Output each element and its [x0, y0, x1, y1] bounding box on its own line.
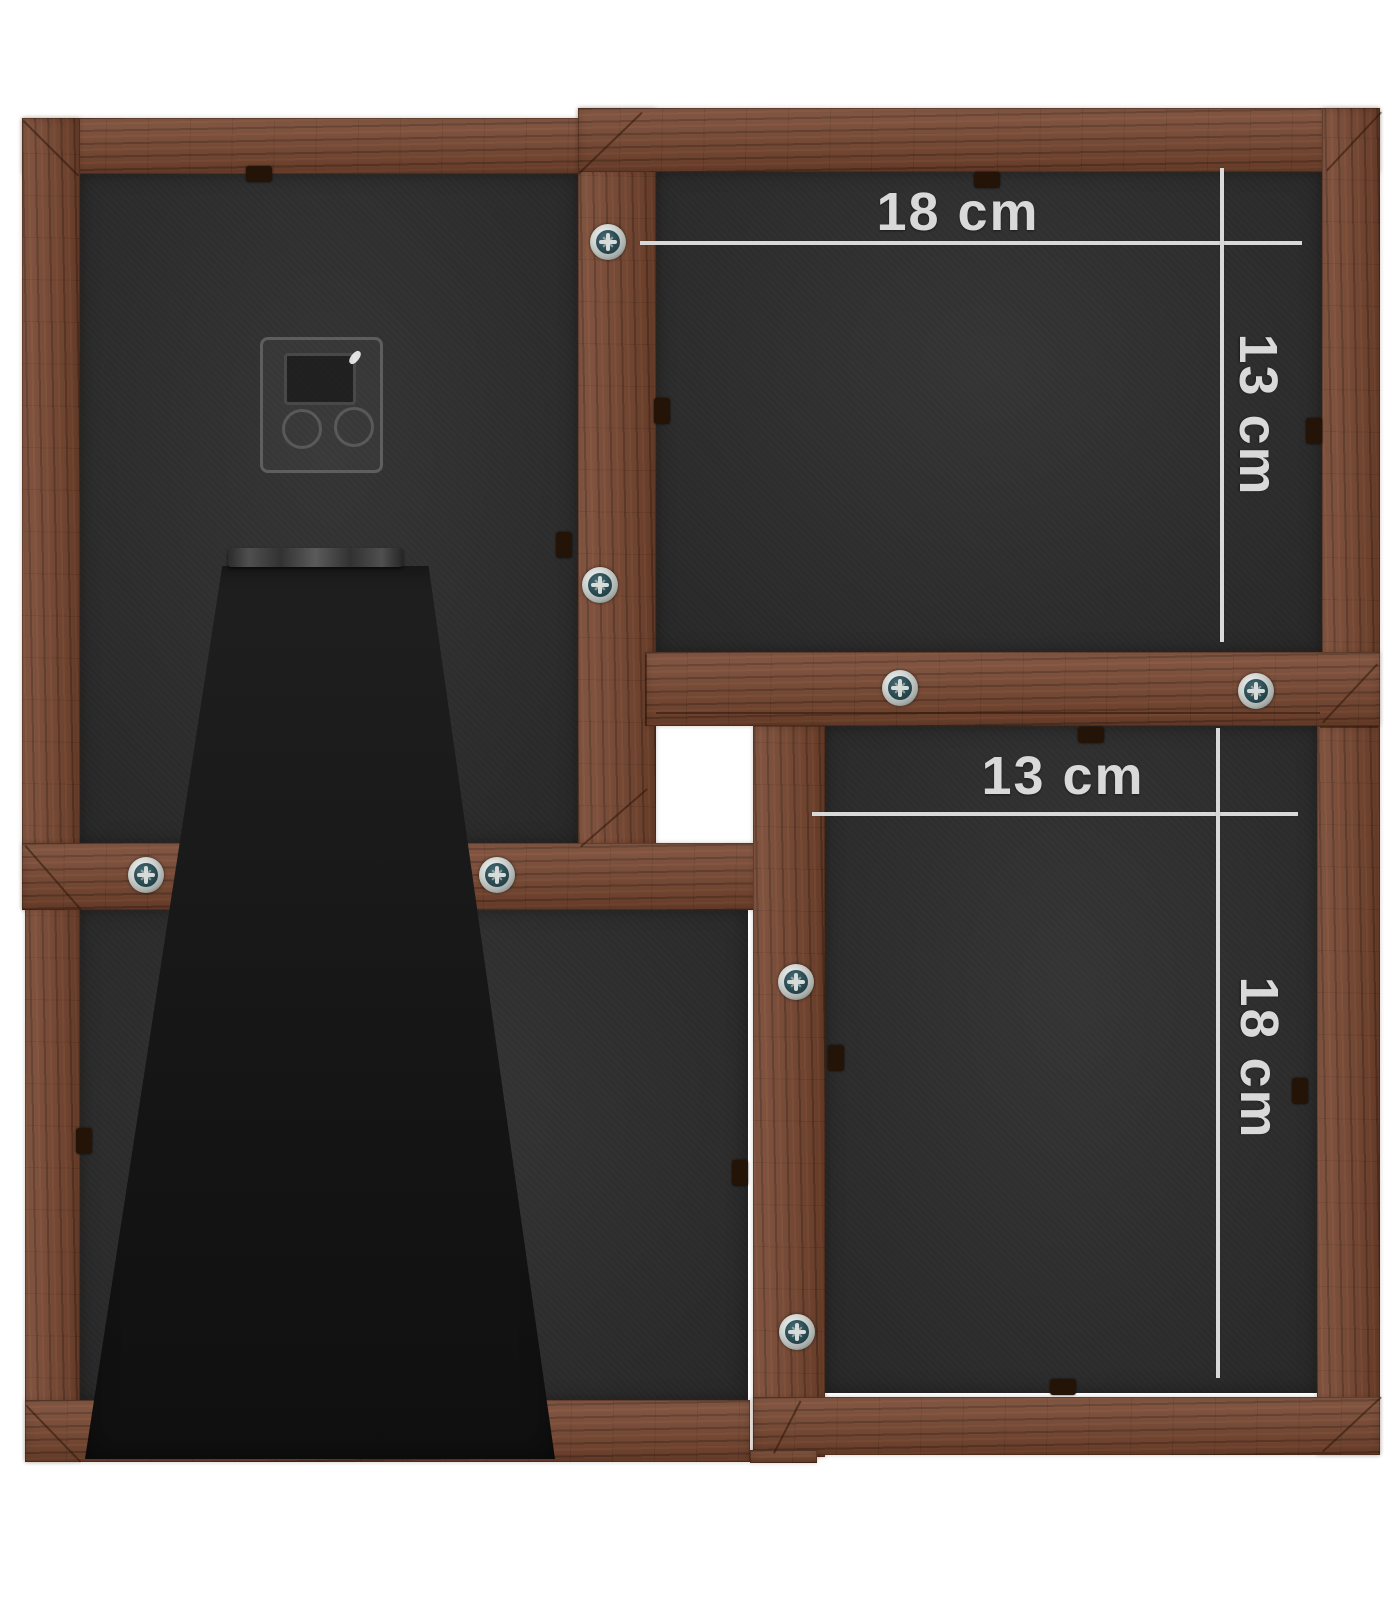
retaining-clip — [246, 166, 272, 182]
top-right-frame-right-bar — [1322, 108, 1380, 726]
retaining-clip — [828, 1045, 844, 1071]
screw — [479, 857, 515, 893]
screw-head — [588, 573, 612, 597]
bottom-right-frame-bottom-bar — [753, 1397, 1380, 1455]
dim-line-bottom-right-height — [1216, 728, 1220, 1378]
screw-head — [485, 863, 509, 887]
retaining-clip — [732, 1160, 748, 1186]
screw-head — [596, 230, 620, 254]
top-left-frame-left-bar — [22, 118, 80, 910]
screw — [882, 670, 918, 706]
product-photo-frame-back: 18 cm 13 cm 13 cm 18 cm — [0, 0, 1400, 1600]
bottom-left-frame-left-bar — [25, 843, 80, 1462]
retaining-clip — [1078, 727, 1104, 743]
center-vertical-bar — [578, 108, 656, 848]
screw — [1238, 673, 1274, 709]
hanger-hole — [282, 409, 322, 449]
retaining-clip — [1050, 1379, 1076, 1395]
dim-line-top-right-height — [1220, 168, 1224, 642]
dim-line-bottom-right-width — [812, 812, 1298, 816]
screw — [779, 1314, 815, 1350]
top-right-frame-top-bar — [578, 108, 1380, 172]
dim-label-bottom-right-width: 13 cm — [981, 749, 1144, 803]
kickstand-hinge — [228, 548, 403, 567]
retaining-clip — [1306, 418, 1322, 444]
screw-head — [1244, 679, 1268, 703]
retaining-clip — [654, 398, 670, 424]
retaining-clip — [556, 532, 572, 558]
seam-middle-bar-left — [645, 654, 647, 726]
seam-middle-bars — [656, 712, 1320, 714]
screw — [128, 857, 164, 893]
screw-head — [785, 1320, 809, 1344]
dim-label-top-right-width: 18 cm — [876, 185, 1039, 239]
retaining-clip — [1292, 1078, 1308, 1104]
screw-head — [134, 863, 158, 887]
screw-head — [784, 970, 808, 994]
hanger-bracket — [260, 337, 383, 473]
screw-head — [888, 676, 912, 700]
screw — [778, 964, 814, 1000]
screw — [582, 567, 618, 603]
top-left-frame-top-bar — [22, 118, 640, 174]
screw — [590, 224, 626, 260]
retaining-clip — [76, 1128, 92, 1154]
hanger-slot — [284, 353, 356, 405]
hanger-hole — [334, 407, 374, 447]
bottom-bar-sliver — [750, 1450, 817, 1463]
bottom-right-frame-right-bar — [1317, 726, 1380, 1455]
dim-label-top-right-height: 13 cm — [1231, 333, 1285, 496]
dim-label-bottom-right-height: 18 cm — [1232, 976, 1286, 1139]
seam-right-column — [1320, 726, 1378, 728]
